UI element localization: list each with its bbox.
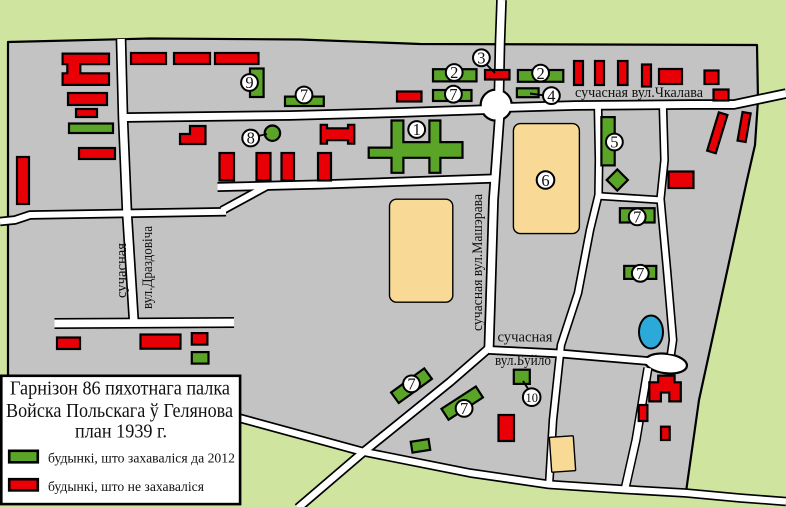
svg-text:8: 8 bbox=[247, 129, 255, 148]
svg-text:сучасная вул.Машэрава: сучасная вул.Машэрава bbox=[470, 194, 486, 331]
svg-text:будынкі, што не захаваліся: будынкі, што не захаваліся bbox=[48, 480, 205, 495]
svg-text:вул.Буйло: вул.Буйло bbox=[495, 353, 551, 369]
svg-text:сучасная вул.Чкалава: сучасная вул.Чкалава bbox=[575, 85, 704, 101]
svg-text:7: 7 bbox=[300, 86, 308, 105]
svg-text:7: 7 bbox=[636, 264, 644, 283]
svg-text:9: 9 bbox=[245, 73, 253, 92]
svg-text:план 1939 г.: план 1939 г. bbox=[75, 421, 167, 443]
svg-text:сучасная: сучасная bbox=[498, 330, 553, 346]
svg-text:Гарнізон 86 пяхотнага палка: Гарнізон 86 пяхотнага палка bbox=[10, 378, 230, 400]
svg-text:вул.Драздовіча: вул.Драздовіча bbox=[140, 226, 156, 309]
svg-text:сучасная: сучасная bbox=[114, 243, 130, 298]
svg-text:6: 6 bbox=[541, 171, 549, 190]
svg-text:5: 5 bbox=[610, 133, 618, 152]
svg-text:7: 7 bbox=[407, 375, 415, 394]
svg-text:7: 7 bbox=[633, 208, 641, 227]
svg-text:1: 1 bbox=[413, 120, 421, 139]
svg-text:Войска Польскага ў Гелянова: Войска Польскага ў Гелянова bbox=[6, 400, 233, 422]
svg-text:3: 3 bbox=[477, 49, 485, 68]
svg-text:7: 7 bbox=[460, 399, 468, 418]
svg-text:будынкі, што захаваліся да 201: будынкі, што захаваліся да 2012 bbox=[48, 452, 235, 467]
svg-text:4: 4 bbox=[547, 86, 555, 105]
svg-text:10: 10 bbox=[525, 391, 538, 405]
svg-text:2: 2 bbox=[536, 64, 544, 83]
svg-text:2: 2 bbox=[450, 63, 458, 82]
svg-text:7: 7 bbox=[449, 85, 457, 104]
